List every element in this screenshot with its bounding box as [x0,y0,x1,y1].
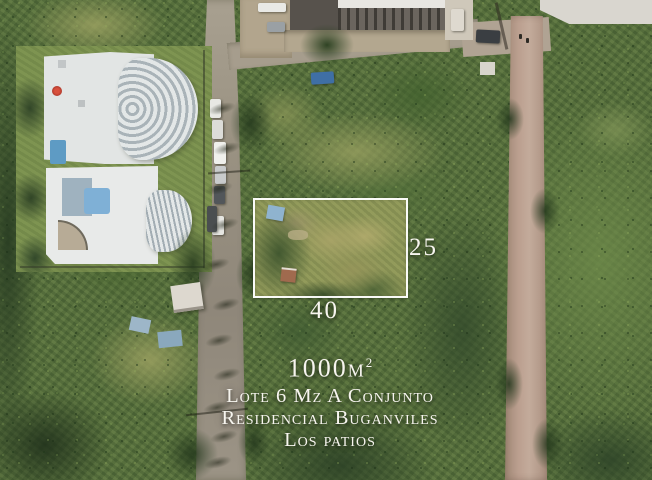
tree [300,24,354,66]
pedestrian [519,34,522,39]
utility-box [480,62,495,75]
parked-car [267,22,285,32]
building-facade [338,8,448,30]
building-roof-strip [338,0,448,8]
aerial-photo: 25 40 1000m2 Lote 6 Mz A Conjunto Reside… [0,0,652,480]
tree [532,418,564,470]
roof-unit [78,100,85,107]
width-dimension-label: 40 [310,297,339,325]
area-exponent: 2 [366,355,373,370]
white-shack [170,282,203,313]
pedestrian [526,38,529,43]
dark-suv [476,29,501,43]
swimming-pool [50,140,66,164]
trailer [451,9,464,31]
tree [530,188,560,234]
caption-line-2: Residencial Buganviles [200,407,460,429]
blue-tarp [157,330,183,348]
roof-unit [58,60,66,68]
lot-boundary [253,198,408,298]
parked-car [212,120,223,139]
parked-car [258,3,286,12]
rooftop-pool [84,188,110,214]
tree [496,98,524,140]
blue-car [311,71,335,85]
dirt-road [505,16,547,480]
red-umbrella [52,86,62,96]
tree [495,358,523,410]
depth-dimension-label: 25 [409,234,438,262]
area-value: 1000m [288,354,366,383]
area-label: 1000m2 [200,350,460,382]
caption-line-3: Los patios [200,429,460,451]
listing-caption: 1000m2 Lote 6 Mz A Conjunto Residencial … [200,350,460,451]
caption-line-1: Lote 6 Mz A Conjunto [200,385,460,407]
